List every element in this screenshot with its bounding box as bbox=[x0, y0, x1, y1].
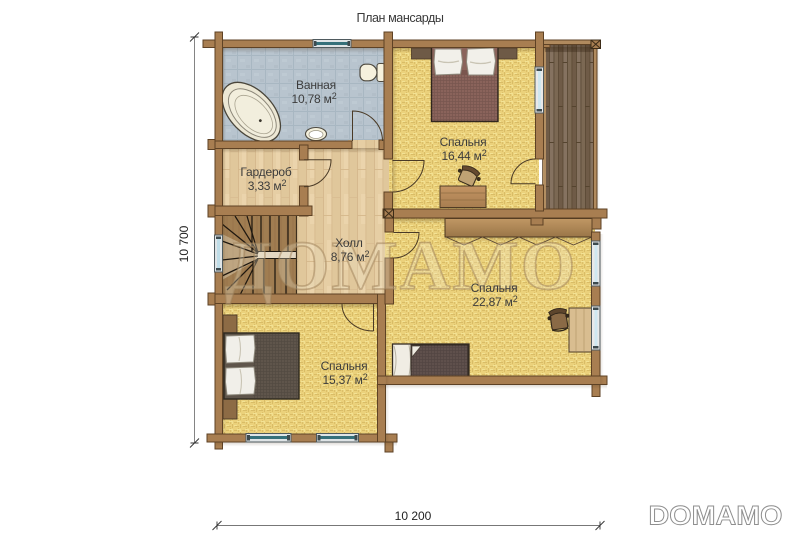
svg-text:Спальня: Спальня bbox=[471, 281, 518, 295]
svg-text:Холл: Холл bbox=[335, 236, 363, 250]
svg-text:10 200: 10 200 bbox=[395, 509, 432, 523]
svg-text:15,37 м2: 15,37 м2 bbox=[322, 372, 367, 387]
svg-text:Ванная: Ванная bbox=[296, 78, 336, 92]
svg-text:16,44 м2: 16,44 м2 bbox=[441, 148, 486, 163]
svg-text:22,87 м2: 22,87 м2 bbox=[472, 294, 517, 309]
svg-text:8,76 м2: 8,76 м2 bbox=[331, 249, 370, 264]
svg-text:Гардероб: Гардероб bbox=[240, 165, 292, 179]
svg-text:3,33 м2: 3,33 м2 bbox=[248, 178, 287, 193]
svg-text:DOMAMO: DOMAMO bbox=[649, 501, 783, 531]
svg-text:10,78 м2: 10,78 м2 bbox=[291, 91, 336, 106]
svg-text:Спальня: Спальня bbox=[440, 135, 487, 149]
svg-text:План мансарды: План мансарды bbox=[356, 11, 443, 25]
svg-text:ДОМАМО: ДОМАМО bbox=[225, 228, 578, 305]
svg-text:10 700: 10 700 bbox=[177, 225, 191, 262]
svg-text:Спальня: Спальня bbox=[321, 359, 368, 373]
